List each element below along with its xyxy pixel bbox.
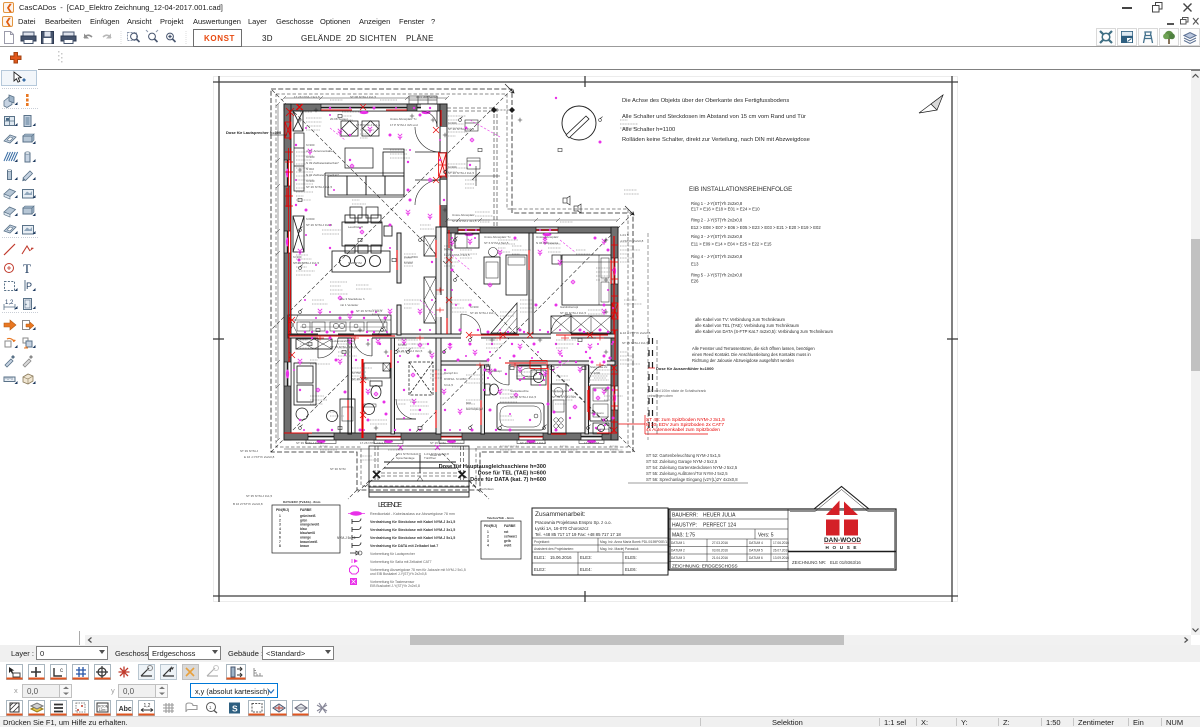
- svg-text:Łyski 1A, 16-070 Choroszcz: Łyski 1A, 16-070 Choroszcz: [535, 526, 589, 531]
- svg-text:FARBE: FARBE: [504, 524, 516, 528]
- svg-text:h=x1,5: h=x1,5: [444, 383, 453, 387]
- svg-text:Telefon/TAE - 4mm: Telefon/TAE - 4mm: [487, 516, 514, 520]
- svg-text:Sprechanlage: Sprechanlage: [396, 456, 415, 460]
- svg-text:DVRS2- h=1450: DVRS2- h=1450: [444, 377, 466, 381]
- svg-text:h=1200: h=1200: [590, 371, 600, 375]
- svg-text:Unsre Abnwplatz Tv: Unsre Abnwplatz Tv: [390, 117, 417, 121]
- svg-text:3: 3: [487, 539, 489, 543]
- svg-text:PIN(R/J): PIN(R/J): [276, 508, 289, 512]
- svg-text:ZEICHNUNG NR:: ZEICHNUNG NR:: [792, 560, 826, 565]
- svg-text:schwarz: schwarz: [504, 535, 517, 539]
- svg-text:Handtuwspi: Handtuwspi: [486, 369, 502, 373]
- svg-text:17.06.2016: 17.06.2016: [773, 541, 789, 545]
- svg-text:h=300: h=300: [470, 305, 479, 309]
- svg-text:ST 26 NYM-J 3x1,5: ST 26 NYM-J 3x1,5: [330, 345, 356, 349]
- svg-text:ST 6 NYM-J 5x2,5: ST 6 NYM-J 5x2,5: [484, 241, 509, 245]
- svg-text:ELE 01/9363/16: ELE 01/9363/16: [830, 560, 861, 565]
- svg-text:ST 26 NYM-J 3x1,5: ST 26 NYM-J 3x1,5: [470, 311, 496, 315]
- svg-text:PIN(R/J): PIN(R/J): [484, 524, 497, 528]
- svg-text:Ring 5 - J-Y(ST)Yh 2x2x0,8: Ring 5 - J-Y(ST)Yh 2x2x0,8: [691, 273, 743, 278]
- svg-text:h=300: h=300: [448, 165, 457, 169]
- svg-text:Die Achse des Objekts über der: Die Achse des Objekts über der Oberkante…: [622, 98, 789, 104]
- svg-text:einen Reed Kontakt. Die Anschl: einen Reed Kontakt. Die Anschlussleitung…: [692, 352, 811, 357]
- svg-text:alle Kabel von TV: Verbindung: alle Kabel von TV: Verbindung zum Techni…: [695, 317, 786, 322]
- svg-text:ST 76 NYM-J 3x1,5: ST 76 NYM-J 3x1,5: [510, 395, 536, 399]
- svg-text:E13: E13: [691, 262, 699, 267]
- svg-text:Vers: 5: Vers: 5: [758, 533, 774, 539]
- svg-text:17.8 NYM-J 3x1,5: 17.8 NYM-J 3x1,5: [356, 123, 380, 127]
- svg-text:1,2: 1,2: [5, 300, 14, 306]
- svg-text:EIB Buskabel J-Y(ST)Yh 2x2x0,8: EIB Buskabel J-Y(ST)Yh 2x2x0,8: [370, 584, 420, 588]
- svg-text:ST 26 NYM-J 3x1,5: ST 26 NYM-J 3x1,5: [293, 261, 319, 265]
- svg-text:Dose für DATA (kat. 7) h=600: Dose für DATA (kat. 7) h=600: [470, 477, 546, 483]
- svg-text:0-01 308 Sensor: 0-01 308 Sensor: [416, 95, 438, 99]
- svg-text:DATA/EDV (TV&Kb) - 8mm: DATA/EDV (TV&Kb) - 8mm: [283, 500, 321, 504]
- svg-text:DATUM 1: DATUM 1: [671, 541, 685, 545]
- svg-text:FARBE: FARBE: [300, 508, 312, 512]
- svg-text:Unsre Abnwplatz: Unsre Abnwplatz: [536, 235, 559, 239]
- svg-text:DATUM 2: DATUM 2: [671, 549, 685, 553]
- svg-text:Alle Schalter h=1100: Alle Schalter h=1100: [622, 127, 675, 133]
- svg-text:Steindose 2x: Steindose 2x: [590, 365, 608, 369]
- svg-text:S 26 NYM: S 26 NYM: [348, 261, 362, 265]
- svg-text:ELE4:: ELE4:: [580, 567, 592, 572]
- svg-text:ST 52: Gartenbeleuchtung NYM-J: ST 52: Gartenbeleuchtung NYM-J 5x1,5: [646, 453, 721, 458]
- svg-text:Verdrahtung für Steckdose mit: Verdrahtung für Steckdose mit Kabel NYM-…: [370, 536, 455, 540]
- svg-text:Ring 3 - J-Y(ST)Yh 2x2x0,8: Ring 3 - J-Y(ST)Yh 2x2x0,8: [691, 234, 743, 239]
- svg-text:ST 6 NYM-J 3x1,5: ST 6 NYM-J 3x1,5: [452, 219, 477, 223]
- svg-text:BAUHERR:: BAUHERR:: [672, 513, 698, 519]
- svg-text:N 02 ZwDatenkaberKat7: N 02 ZwDatenkaberKat7: [306, 173, 339, 177]
- svg-text:h=600: h=600: [306, 217, 315, 221]
- svg-text:J-YSTYh 2x2x0,8: J-YSTYh 2x2x0,8: [620, 239, 644, 243]
- svg-text:13.09.2016: 13.09.2016: [773, 556, 789, 560]
- svg-text:Ring 2 - J-Y(ST)Yh 2x2x0,8: Ring 2 - J-Y(ST)Yh 2x2x0,8: [691, 218, 743, 223]
- svg-text:Rewacom: Rewacom: [596, 427, 610, 431]
- svg-text:HOUSE: HOUSE: [826, 545, 860, 550]
- svg-text:ST 20 NYM-J 3x1,5: ST 20 NYM-J 3x1,5: [448, 171, 474, 175]
- svg-text:Dose für: Dose für: [430, 453, 441, 457]
- svg-text:ST 35 NYM-J 3x1,5: ST 35 NYM-J 3x1,5: [246, 494, 272, 498]
- svg-text:17.26 NYM-J 3x1,5: 17.26 NYM-J 3x1,5: [360, 441, 386, 445]
- svg-text:27.03.2016: 27.03.2016: [712, 541, 728, 545]
- svg-text:ST 26 NYM: ST 26 NYM: [352, 377, 368, 381]
- svg-text:alle Kabel von TEL (TAE): Verb: alle Kabel von TEL (TAE): Verbindung zum…: [695, 323, 800, 328]
- svg-text:Vorbereitung für Lautsprecher: Vorbereitung für Lautsprecher: [370, 552, 416, 556]
- svg-text:Assistent des Projektanten:: Assistent des Projektanten:: [534, 547, 574, 551]
- svg-text:ST 39 NYM-J 3x1,5: ST 39 NYM-J 3x1,5: [296, 441, 322, 445]
- svg-text:ELE3:: ELE3:: [580, 555, 592, 560]
- svg-text:Dampf 2m: Dampf 2m: [444, 371, 458, 375]
- svg-text:8: 8: [279, 544, 281, 548]
- svg-text:CokeWDC: CokeWDC: [404, 255, 419, 259]
- svg-text:ELE5:: ELE5:: [625, 555, 637, 560]
- svg-text:einstiegen oben: einstiegen oben: [649, 394, 673, 398]
- svg-text:MAß: 1:75: MAß: 1:75: [672, 533, 695, 539]
- svg-text:1,2: 1,2: [144, 703, 151, 709]
- svg-text:12m²: 12m²: [99, 708, 108, 712]
- svg-text:17.26 NYM-J 3x1,5: 17.26 NYM-J 3x1,5: [294, 95, 320, 99]
- svg-text:17.26 NYM: 17.26 NYM: [584, 441, 600, 445]
- svg-text:ST 26 NYM-J 3x1,5: ST 26 NYM-J 3x1,5: [560, 311, 586, 315]
- svg-text:Mag. Inż. Anna Maria Borek PDL: Mag. Inż. Anna Maria Borek PDL/0159P00E/…: [600, 540, 669, 544]
- svg-text:alle 3 Steckdose h: alle 3 Steckdose h: [340, 297, 365, 301]
- svg-text:1-01 B: 1-01 B: [620, 233, 629, 237]
- svg-text:ELE1:: ELE1:: [534, 555, 546, 560]
- svg-text:ZEICHNUNG: ERDGESCHOSS: ZEICHNUNG: ERDGESCHOSS: [672, 564, 738, 569]
- svg-text:HAUSTYP:: HAUSTYP:: [672, 523, 697, 529]
- svg-text:Alle Fenster und Terrassentüre: Alle Fenster und Terrassentüren, die sic…: [692, 346, 815, 351]
- svg-text:DATUM 5: DATUM 5: [749, 549, 763, 553]
- svg-text:Verdrahtung für DATA mit Zelka: Verdrahtung für DATA mit Zelkabel kat.7: [370, 544, 438, 548]
- svg-text:braun: braun: [300, 544, 309, 548]
- svg-text:ST 26 NYM-J 3x1,5: ST 26 NYM-J 3x1,5: [448, 127, 474, 131]
- svg-text:4 ST. Antennenkabel: 4 ST. Antennenkabel: [306, 149, 334, 153]
- svg-text:600: 600: [486, 363, 491, 367]
- svg-text:Tel. +48 85 717 17 19 Fax: +48: Tel. +48 85 717 17 19 Fax: +48 85 717 17…: [535, 532, 621, 537]
- svg-text:Unsre Abnwplatz Tv: Unsre Abnwplatz Tv: [484, 235, 511, 239]
- svg-text:ST 56: Sprechanlage Eingang (v: ST 56: Sprechanlage Eingang (v2Y(L)2Y 4x…: [646, 477, 738, 482]
- svg-text:DATUM 3: DATUM 3: [671, 556, 685, 560]
- svg-text:h=300: h=300: [448, 121, 457, 125]
- svg-text:ELE6:: ELE6:: [625, 567, 637, 572]
- svg-text:N 002: N 002: [306, 167, 314, 171]
- svg-text:ST 26 NYM: ST 26 NYM: [430, 441, 446, 445]
- svg-text:LEGENDE: LEGENDE: [378, 502, 402, 509]
- svg-text:E.16 J-YSTYh 2x2x0,8: E.16 J-YSTYh 2x2x0,8: [620, 331, 651, 335]
- svg-text:h=300: h=300: [398, 343, 407, 347]
- svg-text:E11 > E09 > E14 > E04 > E25 >: E11 > E09 > E14 > E04 > E25 > E22 > E15: [691, 242, 772, 247]
- svg-text:Dose für Aussenfühler h=1000: Dose für Aussenfühler h=1000: [656, 366, 714, 371]
- svg-text:P: P: [26, 281, 32, 291]
- svg-text:21.04.2016: 21.04.2016: [712, 556, 728, 560]
- svg-text:Alle Schalter und Steckdosen i: Alle Schalter und Steckdosen im Abstand …: [622, 114, 806, 120]
- svg-text:ST 26 NYM-J 3x1,5: ST 26 NYM-J 3x1,5: [356, 309, 382, 313]
- svg-text:Ue wird 100m näste de Schaltsc: Ue wird 100m näste de Schaltschrank: [649, 389, 706, 393]
- svg-text:ST 53: Zuleitung Garage NYM-J: ST 53: Zuleitung Garage NYM-J 5x2,5: [646, 459, 718, 464]
- svg-text:Mag. Inż. Maciej Panasiuk: Mag. Inż. Maciej Panasiuk: [600, 547, 639, 551]
- svg-text:1: 1: [487, 530, 489, 534]
- svg-text:26.07.2016: 26.07.2016: [773, 549, 789, 553]
- svg-text:E12 > E08 > E07 > E06 > E05 >: E12 > E08 > E07 > E06 > E05 > E23 > E03 …: [691, 225, 821, 230]
- svg-text:ST 39 NYM-J: ST 39 NYM-J: [240, 449, 258, 453]
- svg-text:Unsre Abnwplatz: Unsre Abnwplatz: [452, 213, 475, 217]
- svg-text:Vorbereitung für Sat/a mit Zel: Vorbereitung für Sat/a mit Zelkabel CAT7: [370, 560, 432, 564]
- svg-text:Leuchtstoff: Leuchtstoff: [348, 225, 363, 229]
- svg-text:rot: rot: [504, 530, 509, 534]
- svg-text:N 09 ZwDatenkaberKat7: N 09 ZwDatenkaberKat7: [306, 161, 339, 165]
- svg-text:Rolläden keine Schalter, direk: Rolläden keine Schalter, direkt zur Vert…: [622, 137, 810, 143]
- svg-text:Harmspiegel: Harmspiegel: [466, 407, 483, 411]
- svg-text:B 16 2YSTYh 2x2x0,8: B 16 2YSTYh 2x2x0,8: [233, 502, 263, 506]
- svg-text:17.26 NYM-J 3x1,5: 17.26 NYM-J 3x1,5: [444, 253, 470, 257]
- svg-text:E 16 J-YSTYh 2x2x0,8: E 16 J-YSTYh 2x2x0,8: [244, 455, 275, 459]
- svg-text:DATUM 4: DATUM 4: [749, 541, 763, 545]
- svg-text:E17 > E16 > E18 > E01 > E24 >: E17 > E16 > E18 > E01 > E24 > E10: [691, 207, 760, 212]
- svg-text:Verdampfere: Verdampfere: [552, 389, 570, 393]
- svg-text:h=300: h=300: [306, 179, 315, 183]
- svg-text:ELE2:: ELE2:: [534, 567, 546, 572]
- svg-text:h=300: h=300: [306, 143, 315, 147]
- svg-text:Dose für Hauptausgleichsschien: Dose für Hauptausgleichsschiene h=300: [439, 464, 546, 470]
- svg-text:mit 1 Verteiler: mit 1 Verteiler: [340, 303, 358, 307]
- svg-text:Abc: Abc: [119, 706, 132, 713]
- svg-text:h=300: h=300: [306, 155, 315, 159]
- svg-text:Sockelleuchte: Sockelleuchte: [510, 389, 529, 393]
- svg-text:Pracownia Projektowa Enspro Sp: Pracownia Projektowa Enspro Sp. z o.o.: [535, 520, 612, 525]
- svg-text:ST 26 NYM-J 3x1,5: ST 26 NYM-J 3x1,5: [306, 185, 332, 189]
- svg-text:Projektant:: Projektant:: [534, 540, 550, 544]
- svg-text:15.06.2016: 15.06.2016: [550, 555, 572, 560]
- svg-text:Technikan: Technikan: [480, 487, 494, 491]
- svg-text:Richtung der Jalousie Abzweigd: Richtung der Jalousie Abzweigdose ausgef…: [692, 358, 795, 363]
- svg-text:ST 26 NYM-J 3x1,5: ST 26 NYM-J 3x1,5: [306, 223, 332, 227]
- svg-text:DATUM 6: DATUM 6: [749, 556, 763, 560]
- svg-text:ST 35 NYM-J 3x1,5: ST 35 NYM-J 3x1,5: [622, 341, 648, 345]
- svg-text:Dose für Lautsprecher h=300: Dose für Lautsprecher h=300: [226, 130, 282, 135]
- svg-text:S: S: [232, 704, 238, 714]
- svg-text:c: c: [60, 668, 63, 674]
- svg-text:h=750: h=750: [352, 371, 361, 375]
- svg-text:EIB INSTALLATIONSREIHENFOLGE: EIB INSTALLATIONSREIHENFOLGE: [689, 186, 792, 193]
- svg-text:17 P NYM-J 3x5 und: 17 P NYM-J 3x5 und: [390, 123, 418, 127]
- svg-text:2: 2: [487, 535, 489, 539]
- svg-text:Deckenstrahler 5x: Deckenstrahler 5x: [330, 339, 355, 343]
- svg-text:Verdrahtung für Steckdose mit: Verdrahtung für Steckdose mit Kabel NYM-…: [370, 528, 455, 532]
- svg-text:PERFECT 124: PERFECT 124: [703, 523, 736, 529]
- svg-text:alle Kabel von DATA (S-FTP Kat: alle Kabel von DATA (S-FTP Kat.7 4x2x0,5…: [695, 329, 833, 334]
- svg-text:03.06.2016: 03.06.2016: [712, 549, 728, 553]
- svg-text:20.08 Sensor: 20.08 Sensor: [330, 117, 348, 121]
- svg-text:ST 54: Zuleitung Gartensteckdo: ST 54: Zuleitung Gartensteckdosen NYM-J …: [646, 465, 738, 470]
- svg-text:ST NL NYM-J 3x5: ST NL NYM-J 3x5: [552, 395, 576, 399]
- svg-text:Klimakonv: Klimakonv: [590, 411, 604, 415]
- svg-text:h=300: h=300: [444, 247, 453, 251]
- svg-text:E26: E26: [691, 279, 699, 284]
- svg-text:ST 08 NYM-J 3x1,5: ST 08 NYM-J 3x1,5: [350, 95, 376, 99]
- svg-text:h=300: h=300: [404, 261, 413, 265]
- svg-text:Ring 4 - J-Y(ST)Yh 2x2x0,8: Ring 4 - J-Y(ST)Yh 2x2x0,8: [691, 254, 743, 259]
- svg-text:T: T: [23, 261, 31, 276]
- svg-text:HEUER JULIA: HEUER JULIA: [703, 513, 736, 519]
- svg-text:Verdrahtung für Steckdose mit: Verdrahtung für Steckdose mit Kabel NYM-…: [370, 520, 455, 524]
- svg-text:N 06 ZwDatenka: N 06 ZwDatenka: [536, 241, 559, 245]
- svg-text:Dose für TEL (TAE) h=600: Dose für TEL (TAE) h=600: [478, 471, 546, 477]
- svg-text:600: 600: [466, 401, 471, 405]
- svg-text:ST 55: Zuleitung Außtüren/Tür: ST 55: Zuleitung Außtüren/Tür NYM-J 5x2,…: [646, 471, 728, 476]
- svg-text:S 26 NYM-J 3x1,5: S 26 NYM-J 3x1,5: [398, 349, 423, 353]
- svg-text:ST 26 NYM-J 3x1,5: ST 26 NYM-J 3x1,5: [520, 441, 546, 445]
- svg-text:weiß: weiß: [503, 544, 511, 548]
- svg-text:Reedkontakt - Kabelauslass zur: Reedkontakt - Kabelauslass zur Abzweigdo…: [370, 512, 455, 516]
- svg-text:Gardrobenspi: Gardrobenspi: [560, 305, 579, 309]
- svg-text:Zusammenarbeit:: Zusammenarbeit:: [535, 511, 586, 518]
- svg-text:und EIB Buskabel J-Y(ST)Yh 2x2: und EIB Buskabel J-Y(ST)Yh 2x2x0,8: [370, 572, 427, 576]
- svg-text:Ring 1 - J-Y(ST)Yh 2x2x0,8: Ring 1 - J-Y(ST)Yh 2x2x0,8: [691, 201, 743, 206]
- svg-text:h=300: h=300: [293, 255, 302, 259]
- svg-text:4: 4: [487, 544, 489, 548]
- svg-text:4x Antennenkabel zum Spitzbode: 4x Antennenkabel zum Spitzboden: [646, 427, 720, 433]
- svg-text:ST 30 NYM: ST 30 NYM: [330, 467, 346, 471]
- svg-text:gelb: gelb: [504, 539, 511, 543]
